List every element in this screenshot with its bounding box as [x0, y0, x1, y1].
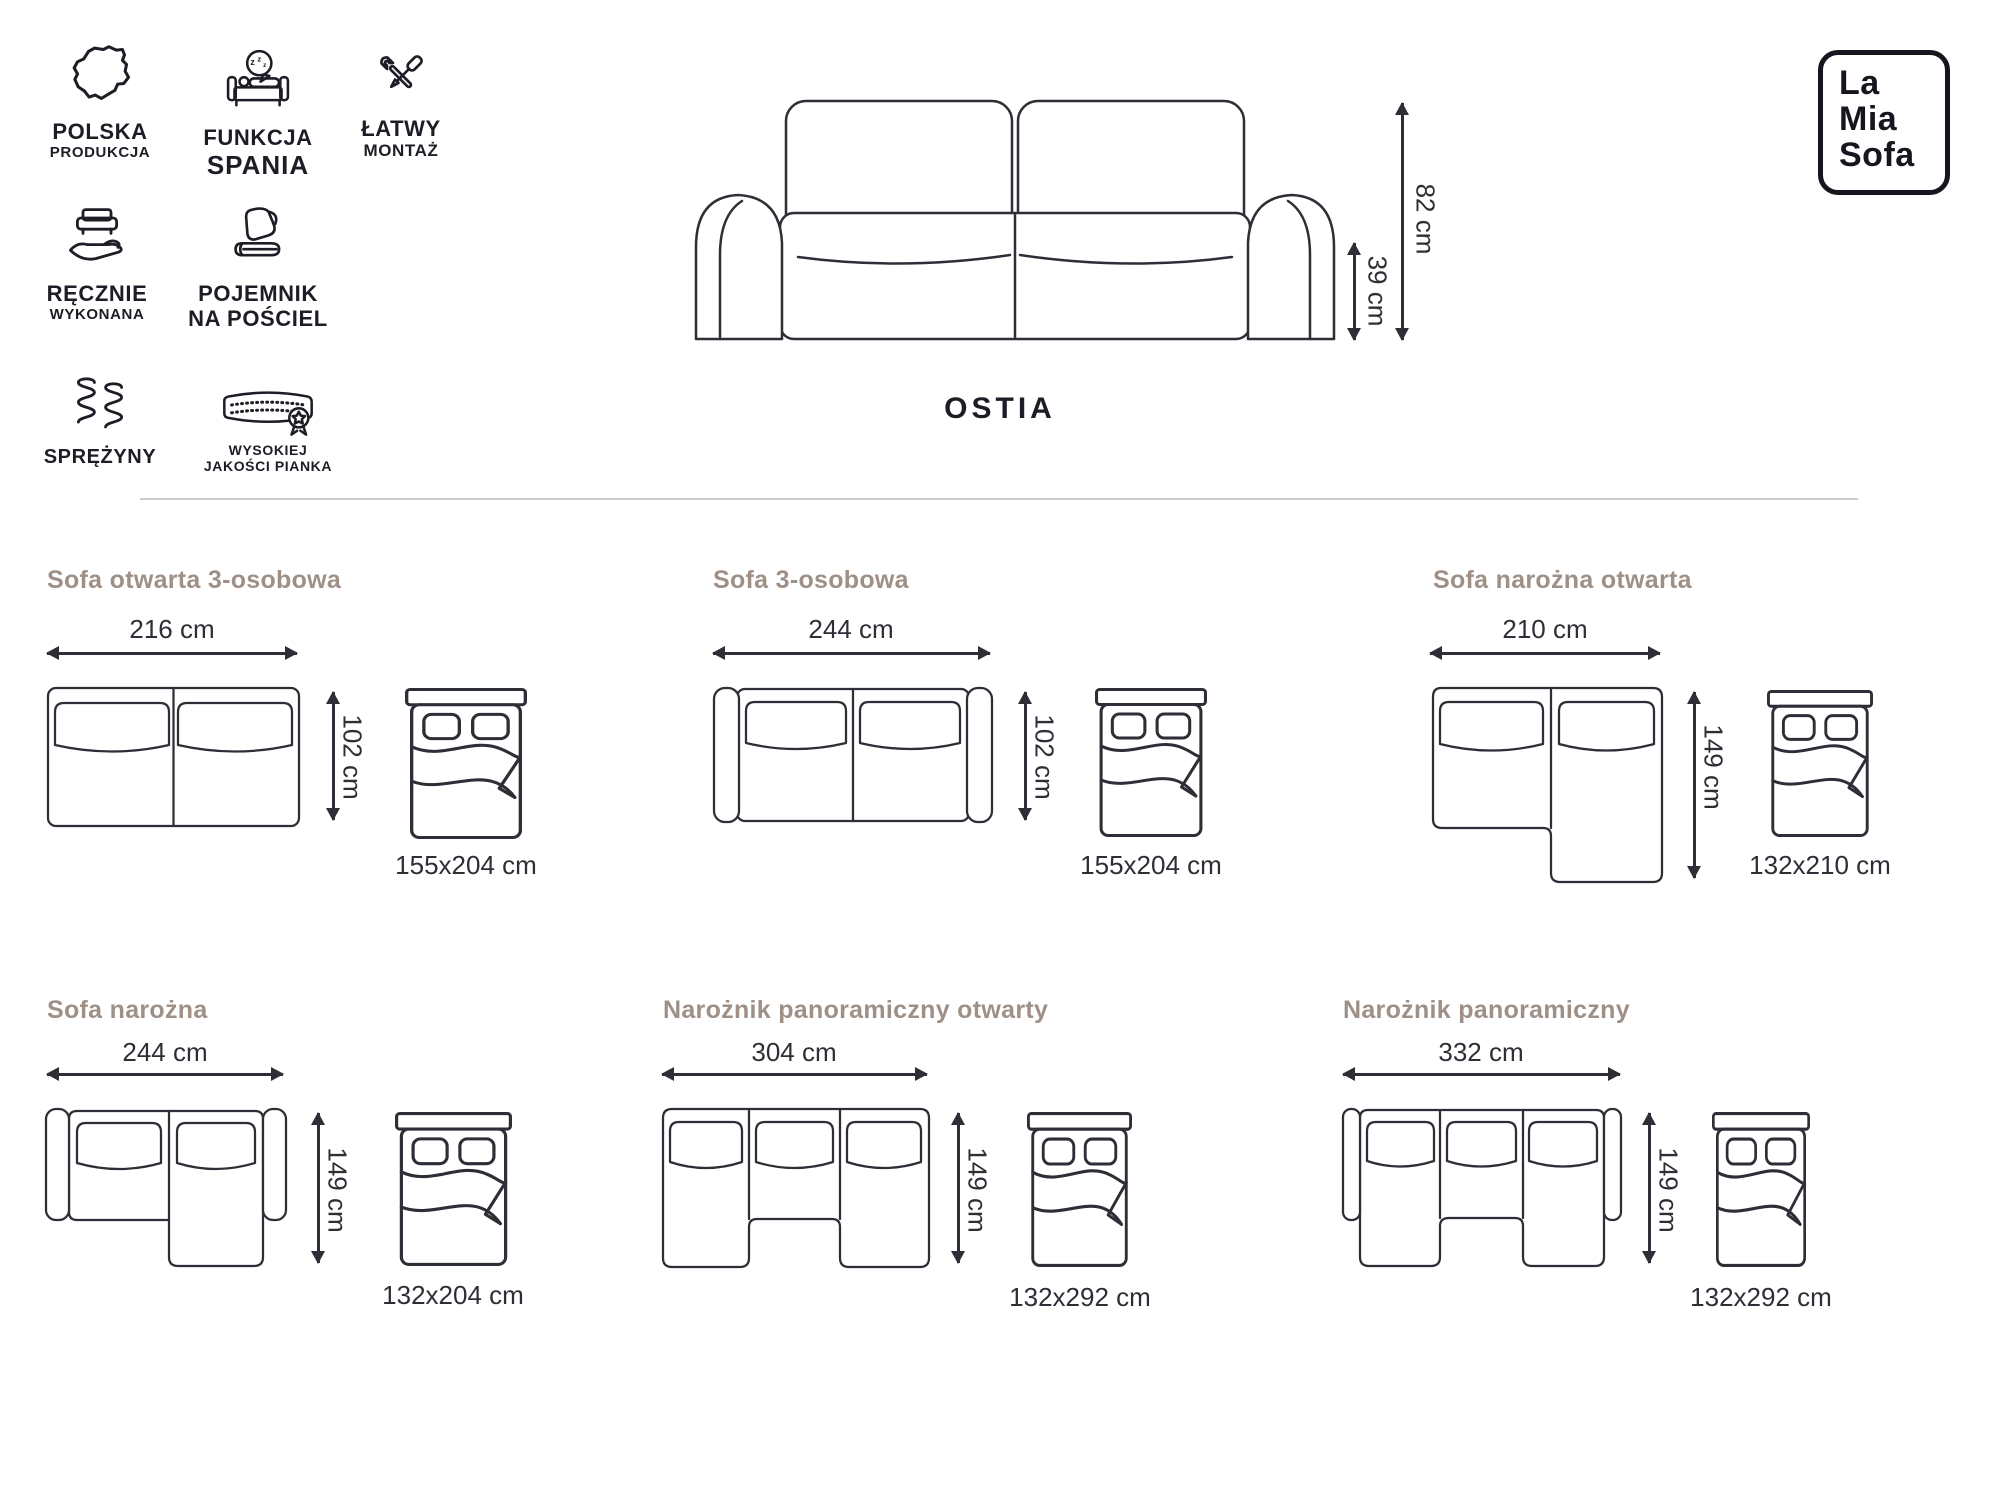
- svg-text:z: z: [257, 54, 261, 63]
- width-arrow: [1430, 652, 1660, 655]
- sofa-top-view-drawing: [47, 687, 300, 827]
- depth-label: 149 cm: [1698, 724, 1729, 809]
- width-arrow: [1343, 1073, 1620, 1076]
- panel-title: Sofa narożna otwarta: [1433, 566, 1692, 595]
- sofa-top-view-drawing: [45, 1108, 287, 1267]
- seat-height-label: 39 cm: [1362, 256, 1393, 327]
- feature-tile-recznie: RĘCZNIE WYKONANA: [27, 204, 167, 324]
- seat-height-arrow: [1353, 243, 1356, 340]
- width-arrow: [662, 1073, 927, 1076]
- poland-map-icon: [66, 40, 134, 112]
- panel-title: Sofa 3-osobowa: [713, 566, 909, 595]
- depth-arrow: [957, 1113, 960, 1263]
- sofa-top-view-drawing: [713, 687, 993, 823]
- brand-logo-line: Mia: [1839, 101, 1945, 137]
- width-label: 244 cm: [808, 614, 893, 645]
- depth-arrow: [332, 692, 335, 820]
- panel-title: Sofa otwarta 3-osobowa: [47, 566, 341, 595]
- total-height-label: 82 cm: [1410, 184, 1441, 255]
- feature-label: POLSKA: [52, 120, 147, 144]
- sleep-function-icon: z z z: [223, 44, 293, 118]
- total-height-arrow: [1401, 103, 1404, 340]
- depth-arrow: [1024, 692, 1027, 820]
- feature-sublabel: NA POŚCIEL: [188, 306, 328, 332]
- easy-assembly-icon: [371, 45, 431, 109]
- divider-line: [140, 498, 1858, 500]
- feature-label: SPRĘŻYNY: [44, 446, 157, 468]
- width-arrow: [47, 652, 297, 655]
- feature-sublabel: MONTAŻ: [363, 141, 438, 161]
- brand-logo-line: La: [1839, 65, 1945, 101]
- feature-sublabel: SPANIA: [207, 150, 309, 181]
- svg-text:z: z: [263, 62, 266, 69]
- width-label: 210 cm: [1502, 614, 1587, 645]
- feature-label: ŁATWY: [361, 117, 441, 141]
- brand-logo: La Mia Sofa: [1818, 50, 1950, 195]
- bed-size-label: 132x210 cm: [1749, 850, 1891, 881]
- feature-sublabel: PRODUKCJA: [50, 144, 150, 162]
- sofa-top-view-drawing: [1342, 1108, 1622, 1267]
- bed-size-label: 132x292 cm: [1009, 1282, 1151, 1313]
- feature-tile-pianka: WYSOKIEJ JAKOŚCI PIANKA: [186, 382, 350, 475]
- width-label: 216 cm: [129, 614, 214, 645]
- brand-logo-line: Sofa: [1839, 137, 1945, 173]
- depth-arrow: [1693, 692, 1696, 878]
- bed-size-label: 132x204 cm: [382, 1280, 524, 1311]
- sofa-top-view-drawing: [1432, 687, 1663, 883]
- bedding-storage-icon: [225, 202, 291, 274]
- feature-label: WYSOKIEJ: [229, 443, 308, 458]
- bed-top-view-icon: [1712, 1112, 1810, 1268]
- bed-top-view-icon: [1027, 1112, 1132, 1268]
- handmade-icon: [62, 204, 132, 274]
- width-arrow: [47, 1073, 283, 1076]
- bed-size-label: 155x204 cm: [395, 850, 537, 881]
- feature-tile-latwy-montaz: ŁATWY MONTAŻ: [331, 45, 471, 162]
- feature-label: RĘCZNIE: [47, 282, 148, 306]
- depth-label: 149 cm: [962, 1147, 993, 1232]
- page: POLSKA PRODUKCJA z z z FUNKCJA SPANIA: [0, 0, 2000, 1500]
- panel-title: Sofa narożna: [47, 996, 208, 1025]
- svg-text:z: z: [250, 57, 255, 67]
- sofa-top-view-drawing: [662, 1108, 930, 1268]
- feature-sublabel: WYKONANA: [50, 306, 145, 324]
- bed-top-view-icon: [405, 688, 527, 840]
- depth-arrow: [1648, 1113, 1651, 1263]
- feature-tile-polska: POLSKA PRODUKCJA: [30, 40, 170, 162]
- panel-title: Narożnik panoramiczny: [1343, 996, 1630, 1025]
- bed-size-label: 155x204 cm: [1080, 850, 1222, 881]
- width-label: 304 cm: [751, 1037, 836, 1068]
- feature-tile-pojemnik: POJEMNIK NA POŚCIEL: [188, 202, 328, 333]
- width-label: 244 cm: [122, 1037, 207, 1068]
- bed-size-label: 132x292 cm: [1690, 1282, 1832, 1313]
- depth-label: 102 cm: [1029, 714, 1060, 799]
- feature-sublabel: JAKOŚCI PIANKA: [204, 458, 332, 475]
- feature-label: FUNKCJA: [203, 126, 312, 150]
- bed-top-view-icon: [1767, 690, 1873, 838]
- width-arrow: [713, 652, 990, 655]
- product-name: OSTIA: [944, 392, 1056, 426]
- bed-top-view-icon: [1095, 688, 1207, 838]
- depth-label: 149 cm: [322, 1147, 353, 1232]
- feature-tile-funkcja-spania: z z z FUNKCJA SPANIA: [188, 44, 328, 181]
- springs-icon: [66, 374, 134, 438]
- panel-title: Narożnik panoramiczny otwarty: [663, 996, 1048, 1025]
- feature-label: POJEMNIK: [198, 282, 318, 306]
- depth-label: 102 cm: [337, 714, 368, 799]
- depth-label: 149 cm: [1653, 1147, 1684, 1232]
- sofa-front-view-drawing: [690, 95, 1340, 341]
- feature-tile-sprezyny: SPRĘŻYNY: [30, 374, 170, 468]
- depth-arrow: [317, 1113, 320, 1263]
- bed-top-view-icon: [395, 1112, 512, 1267]
- foam-quality-icon: [202, 382, 334, 438]
- width-label: 332 cm: [1438, 1037, 1523, 1068]
